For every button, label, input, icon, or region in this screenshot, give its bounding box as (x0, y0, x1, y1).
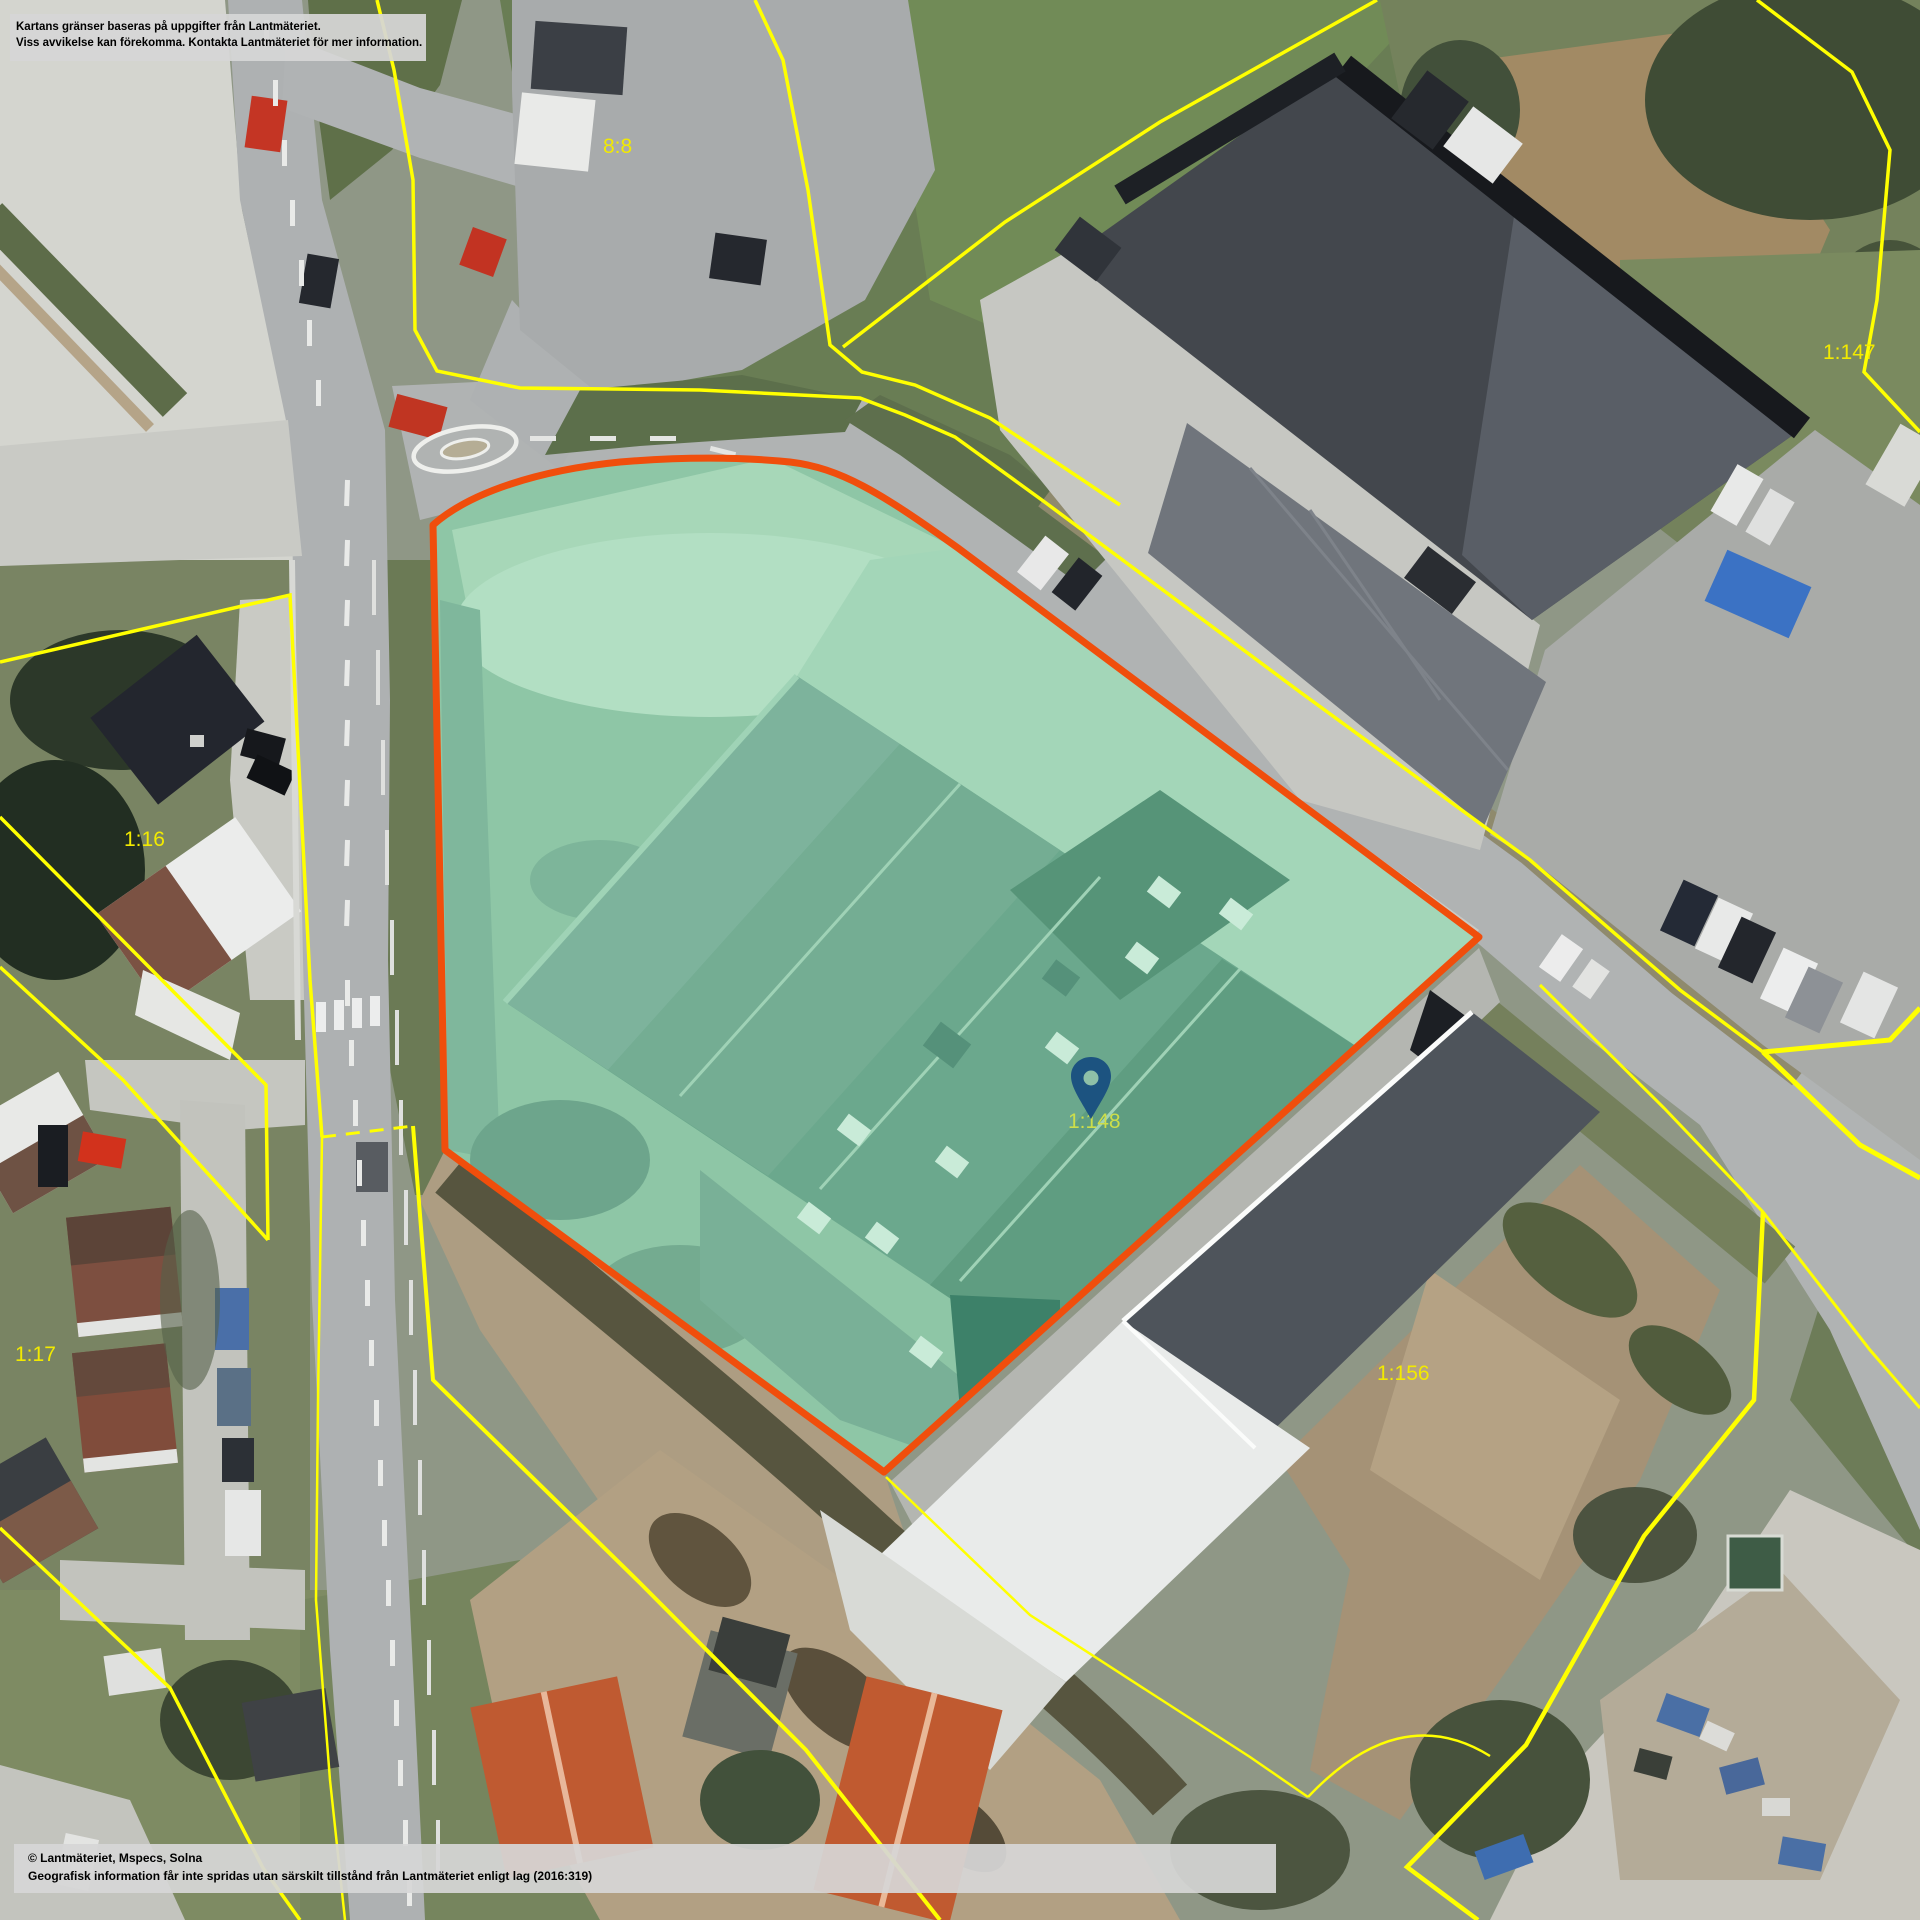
svg-text:1:148: 1:148 (1068, 1110, 1121, 1133)
svg-text:1:17: 1:17 (15, 1343, 56, 1366)
svg-text:8:8: 8:8 (603, 135, 632, 158)
svg-text:1:16: 1:16 (124, 828, 165, 851)
svg-text:1:156: 1:156 (1377, 1362, 1430, 1385)
svg-text:1:147: 1:147 (1823, 341, 1876, 364)
